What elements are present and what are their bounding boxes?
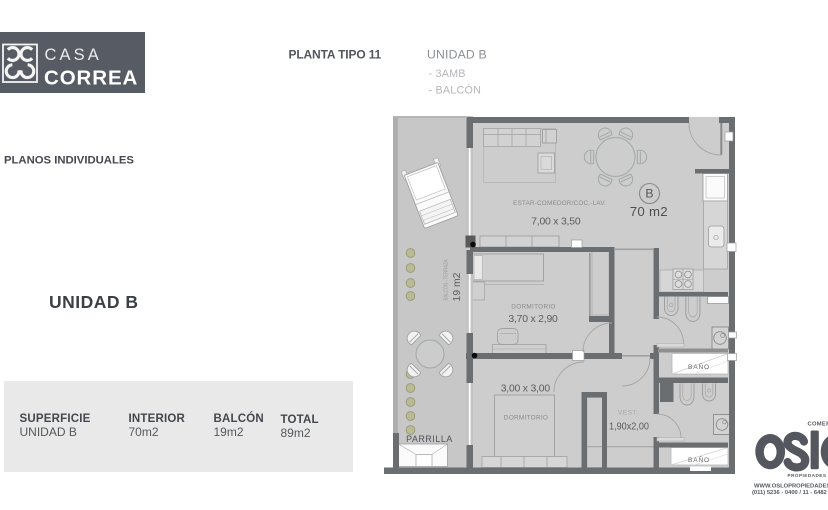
svg-text:CASA: CASA xyxy=(45,46,102,64)
svg-text:3,00 x 3,00: 3,00 x 3,00 xyxy=(501,384,551,395)
svg-text:PARRILLA: PARRILLA xyxy=(406,434,453,444)
svg-text:B: B xyxy=(645,187,653,201)
svg-text:UNIDAD B: UNIDAD B xyxy=(20,425,77,439)
svg-text:BALCÓN - TERRAZA: BALCÓN - TERRAZA xyxy=(443,259,450,300)
svg-text:BAÑO: BAÑO xyxy=(688,455,710,464)
svg-text:INTERIOR: INTERIOR xyxy=(129,413,186,425)
svg-text:TOTAL: TOTAL xyxy=(281,414,319,426)
svg-text:DORMITORIO: DORMITORIO xyxy=(504,415,548,422)
svg-text:COMERCIALIZA: COMERCIALIZA xyxy=(808,422,828,428)
svg-text:PROPIEDADES: PROPIEDADES xyxy=(788,473,827,478)
svg-text:ESTAR-COMEDOR/COC.-LAV.: ESTAR-COMEDOR/COC.-LAV. xyxy=(513,200,606,207)
svg-text:1,90x2,00: 1,90x2,00 xyxy=(609,422,649,433)
svg-text:UNIDAD B: UNIDAD B xyxy=(49,292,139,312)
svg-text:19m2: 19m2 xyxy=(214,425,244,439)
svg-text:- BALCÓN: - BALCÓN xyxy=(429,84,482,97)
svg-text:VEST.: VEST. xyxy=(618,410,639,417)
svg-text:PLANOS INDIVIDUALES: PLANOS INDIVIDUALES xyxy=(4,155,134,167)
svg-text:BAÑO: BAÑO xyxy=(688,362,710,371)
svg-text:BALCÓN: BALCÓN xyxy=(214,412,264,425)
svg-text:- 3AMB: - 3AMB xyxy=(429,68,466,80)
svg-text:19 m2: 19 m2 xyxy=(452,272,463,301)
svg-text:89m2: 89m2 xyxy=(281,426,311,440)
svg-text:PLANTA TIPO 11: PLANTA TIPO 11 xyxy=(289,48,382,62)
svg-text:WWW.OSLOPROPIEDADES.COM.AR: WWW.OSLOPROPIEDADES.COM.AR xyxy=(754,484,828,490)
svg-text:DORMITORIO: DORMITORIO xyxy=(511,304,555,311)
svg-text:UNIDAD B: UNIDAD B xyxy=(427,48,487,62)
svg-text:7,00 x 3,50: 7,00 x 3,50 xyxy=(531,217,581,228)
svg-text:70 m2: 70 m2 xyxy=(630,204,668,219)
svg-text:70m2: 70m2 xyxy=(129,425,159,439)
svg-text:CORREA: CORREA xyxy=(44,67,138,90)
svg-text:(011) 5236 - 0400 / 11 - 6482: (011) 5236 - 0400 / 11 - 6482 - 9628 xyxy=(752,490,828,496)
svg-text:3,70 x 2,90: 3,70 x 2,90 xyxy=(508,314,558,325)
svg-text:SUPERFICIE: SUPERFICIE xyxy=(20,413,91,425)
